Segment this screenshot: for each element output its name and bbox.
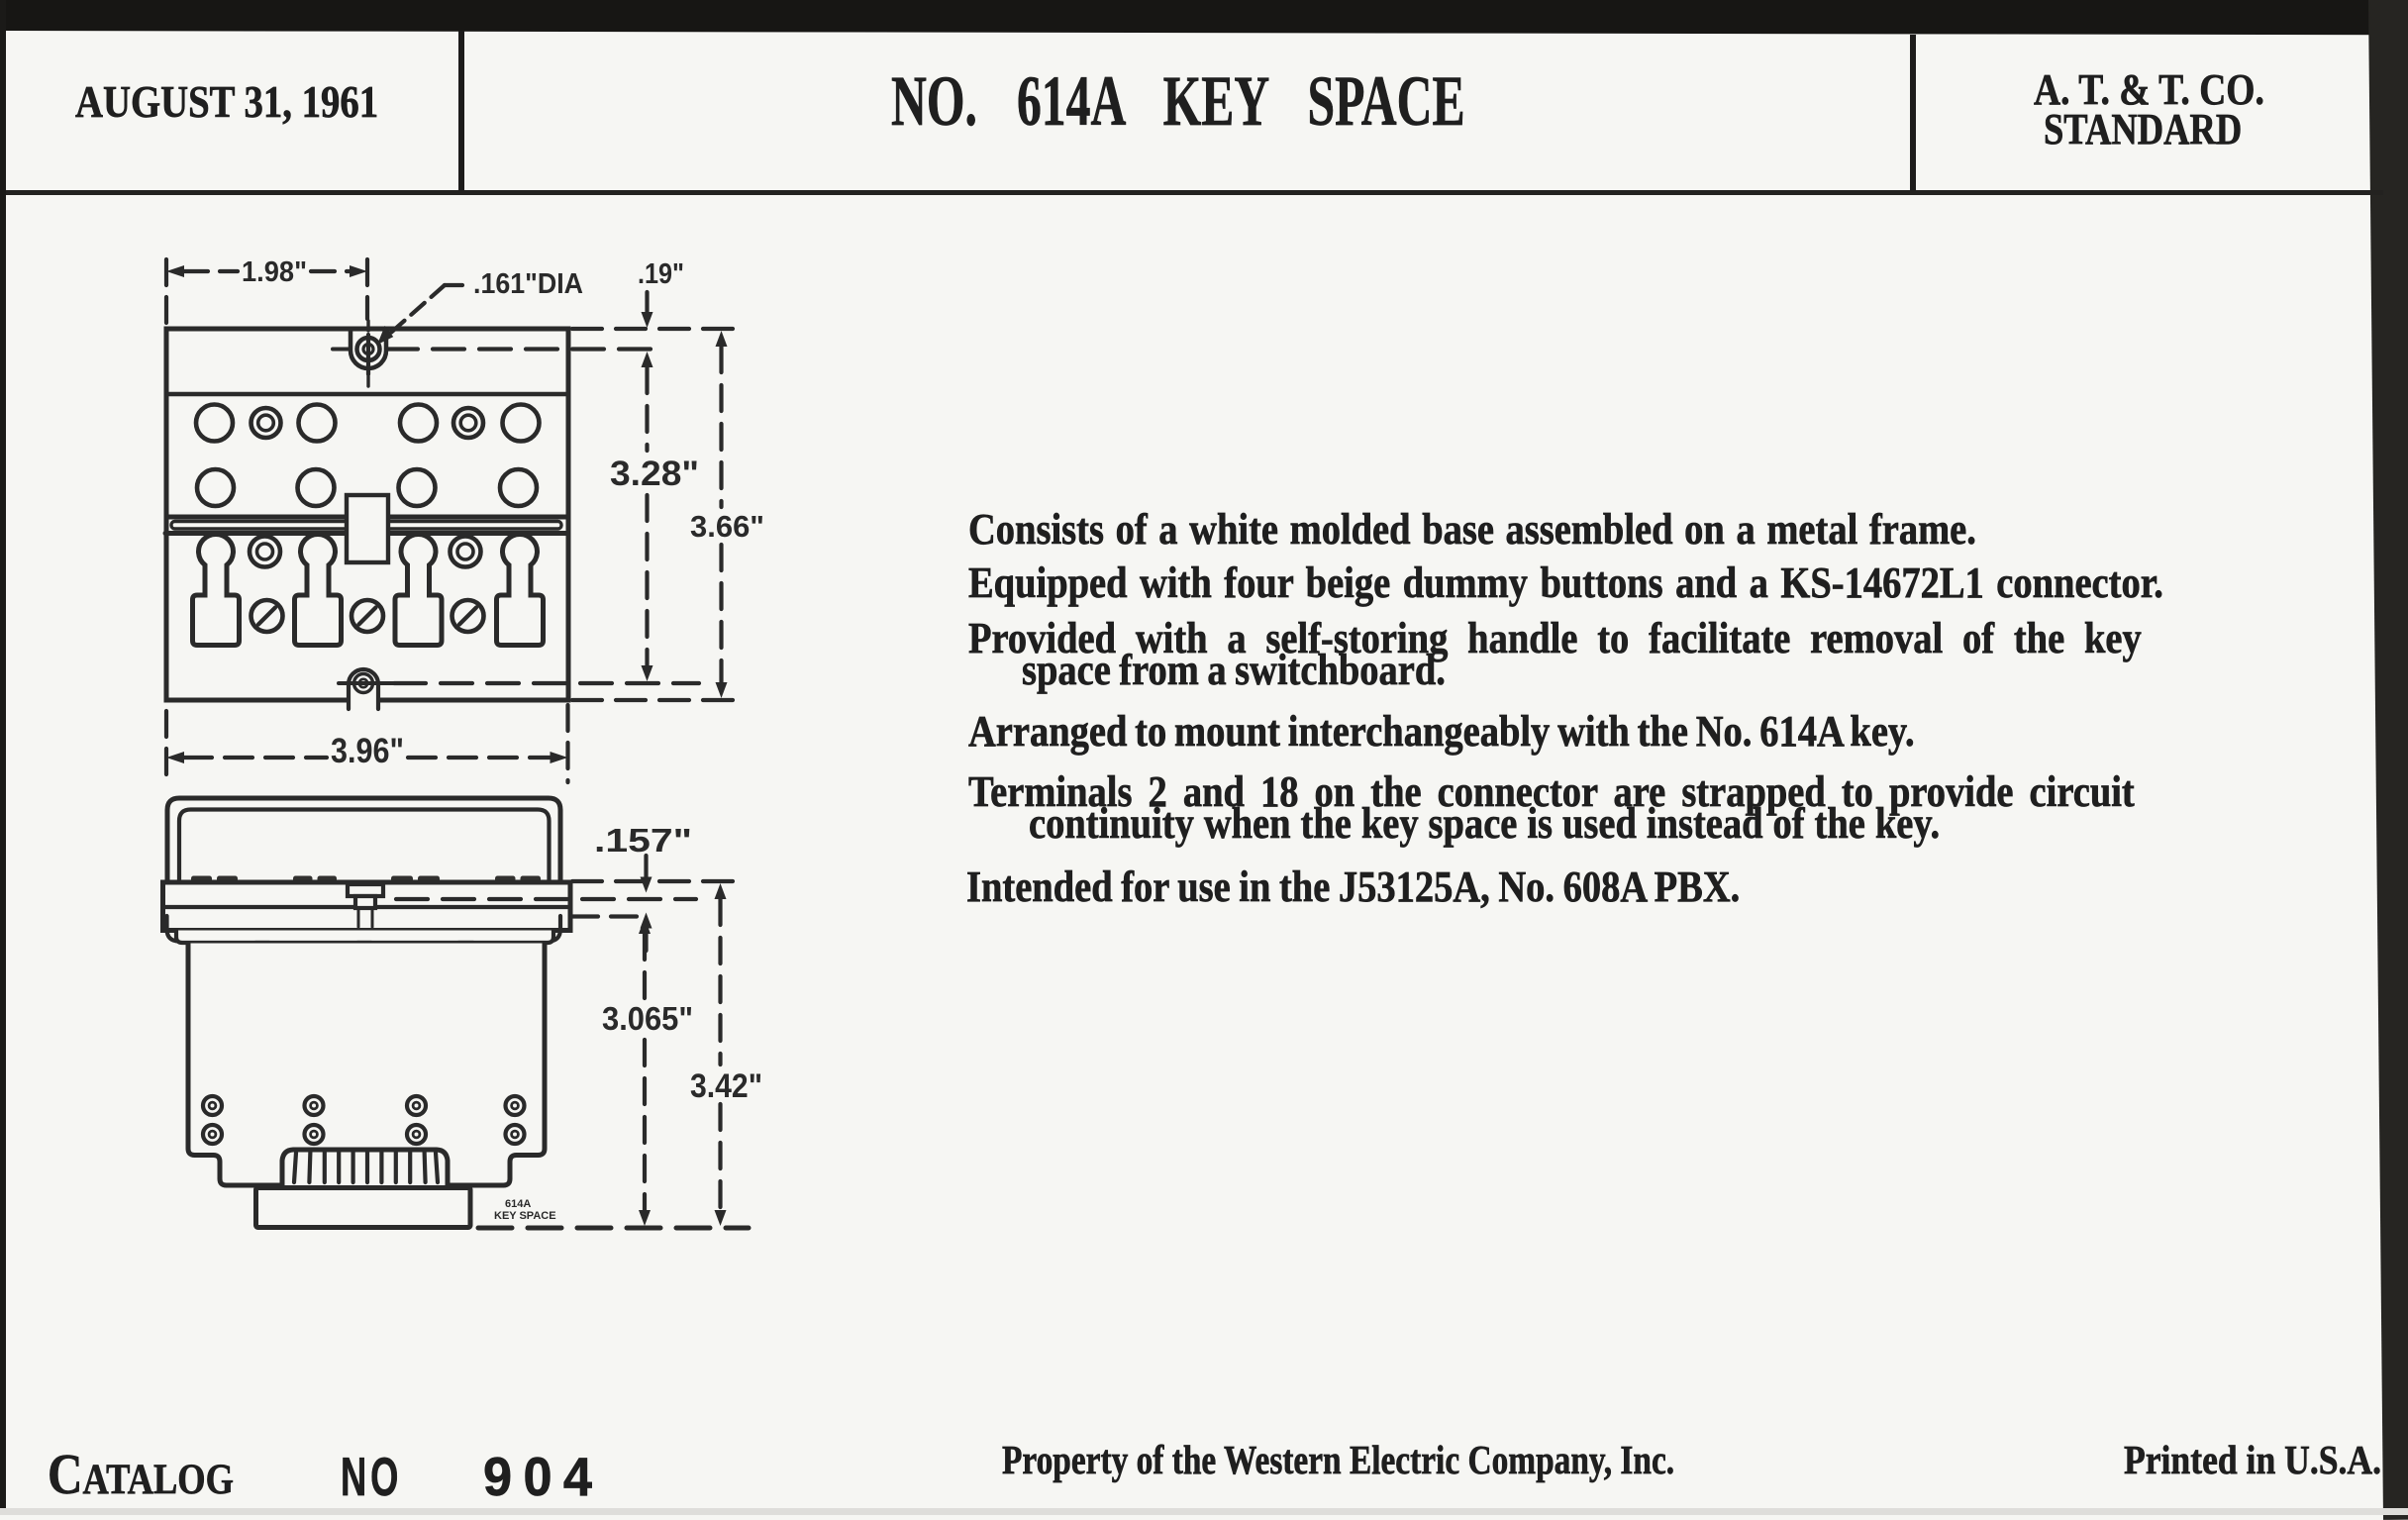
svg-text:3.065": 3.065" (602, 1000, 693, 1037)
svg-text:3.96": 3.96" (331, 732, 404, 770)
svg-text:3.28": 3.28" (610, 455, 699, 493)
svg-text:1.98": 1.98" (242, 256, 307, 288)
svg-text:.161"DIA: .161"DIA (473, 268, 583, 300)
svg-text:.157": .157" (594, 822, 692, 859)
svg-text:3.42": 3.42" (690, 1067, 762, 1105)
svg-text:3.66": 3.66" (690, 509, 764, 544)
svg-text:KEY SPACE: KEY SPACE (494, 1210, 556, 1222)
svg-text:614A: 614A (505, 1198, 531, 1210)
svg-text:.19": .19" (638, 258, 684, 290)
